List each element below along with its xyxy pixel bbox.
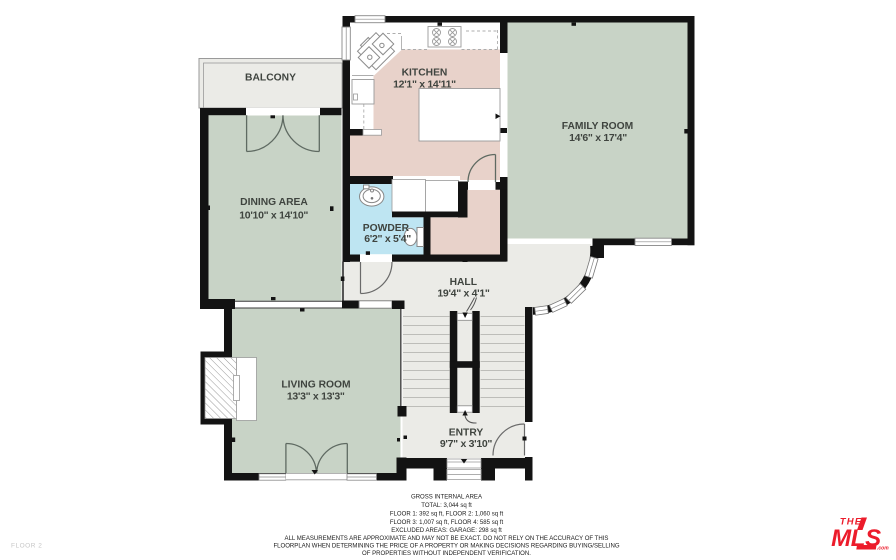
svg-text:10'10" x 14'10": 10'10" x 14'10"	[239, 209, 308, 221]
svg-text:13'3" x 13'3": 13'3" x 13'3"	[287, 391, 345, 403]
svg-text:9'7" x 3'10": 9'7" x 3'10"	[440, 438, 493, 450]
svg-text:FLOOR 3: 1,007 sq ft, FLOOR 4:: FLOOR 3: 1,007 sq ft, FLOOR 4: 585 sq ft	[390, 520, 504, 526]
svg-text:ALL MEASUREMENTS ARE APPROXIMA: ALL MEASUREMENTS ARE APPROXIMATE AND MAY…	[285, 536, 609, 542]
svg-text:OF PROPERTIES WITHOUT INDEPEND: OF PROPERTIES WITHOUT INDEPENDENT VERIFI…	[362, 551, 531, 557]
svg-text:DINING AREA: DINING AREA	[240, 197, 308, 208]
svg-text:ENTRY: ENTRY	[449, 428, 484, 439]
svg-text:EXCLUDED AREAS: GARAGE: 298 sq: EXCLUDED AREAS: GARAGE: 298 sq ft	[391, 528, 502, 534]
svg-text:FLOOR 2: FLOOR 2	[11, 543, 42, 550]
svg-text:GROSS INTERNAL AREA: GROSS INTERNAL AREA	[411, 495, 483, 501]
svg-text:BALCONY: BALCONY	[245, 73, 296, 84]
svg-text:.com: .com	[877, 546, 889, 552]
svg-text:LIVING ROOM: LIVING ROOM	[281, 380, 350, 391]
svg-text:14'6" x 17'4": 14'6" x 17'4"	[569, 132, 627, 144]
svg-text:FLOOR 1: 392 sq ft, FLOOR 2: 1: FLOOR 1: 392 sq ft, FLOOR 2: 1,060 sq ft	[390, 512, 504, 518]
svg-text:TOTAL: 3,044 sq ft: TOTAL: 3,044 sq ft	[421, 503, 472, 509]
svg-text:FAMILY ROOM: FAMILY ROOM	[562, 121, 634, 132]
svg-text:KITCHEN: KITCHEN	[402, 68, 448, 79]
svg-text:19'4" x 4'1": 19'4" x 4'1"	[437, 288, 490, 300]
svg-text:HALL: HALL	[450, 277, 477, 288]
svg-text:6'2" x 5'4": 6'2" x 5'4"	[364, 233, 411, 245]
svg-text:12'1" x 14'11": 12'1" x 14'11"	[393, 79, 456, 91]
svg-text:FLOORPLAN WHEN DETERMINING THE: FLOORPLAN WHEN DETERMINING THE PRICE OF …	[273, 544, 619, 550]
